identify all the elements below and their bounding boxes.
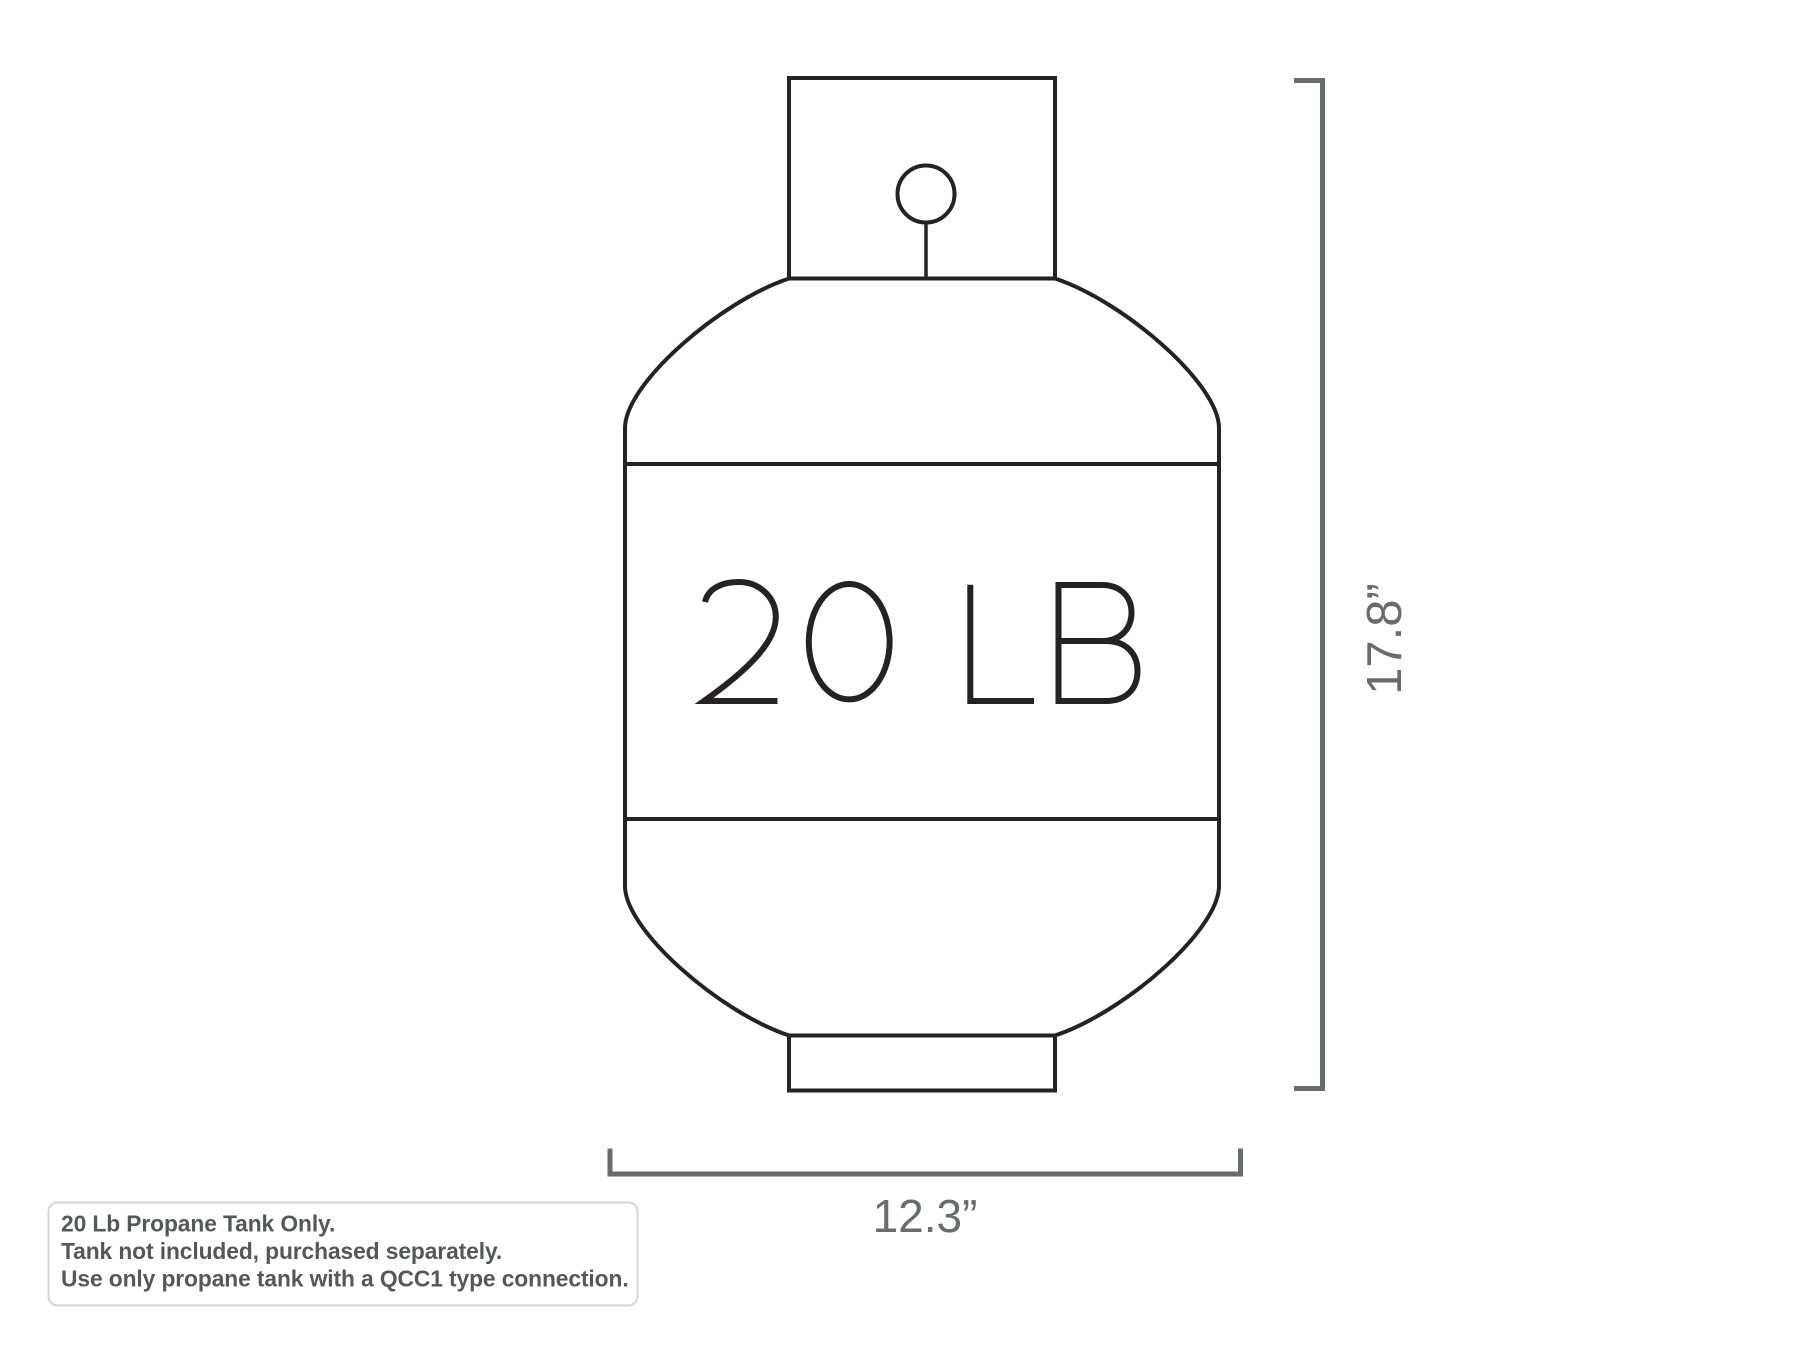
svg-text:Tank not included, purchased s: Tank not included, purchased separately. [61, 1238, 502, 1264]
svg-text:12.3”: 12.3” [873, 1190, 978, 1242]
svg-text:Use only propane tank with a Q: Use only propane tank with a QCC1 type c… [61, 1266, 629, 1292]
svg-text:20 Lb Propane Tank Only.: 20 Lb Propane Tank Only. [61, 1211, 335, 1237]
svg-text:17.8”: 17.8” [1358, 583, 1412, 695]
